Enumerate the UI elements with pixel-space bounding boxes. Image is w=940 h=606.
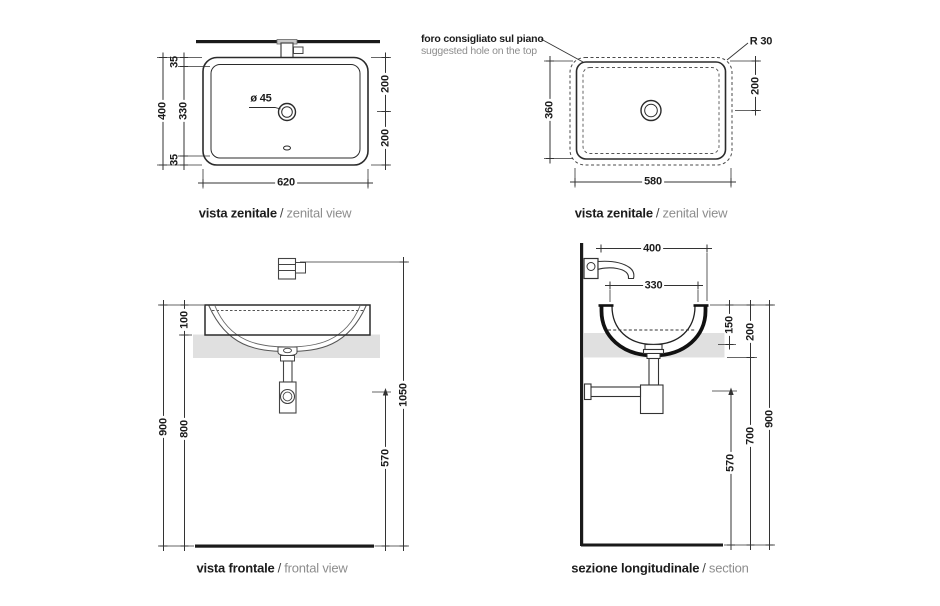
plan-left-view	[157, 40, 391, 189]
note-leader-line	[541, 39, 583, 62]
dim-center-bottom: 200	[380, 127, 391, 149]
floor-line	[195, 545, 374, 548]
title-divider: /	[656, 206, 660, 221]
dim-inner-depth: 330	[643, 280, 665, 291]
frontal-view	[158, 257, 409, 551]
wall-line	[580, 243, 583, 546]
title-divider: /	[278, 561, 282, 576]
section-dimensions	[596, 245, 775, 551]
dim-basin-height: 200	[745, 321, 756, 343]
dim-inner-height: 330	[179, 100, 190, 122]
technical-drawing-sheet: 400 35 330 35 200 200 620 ø 45 vista zen…	[0, 0, 940, 606]
dim-drain-height: 570	[726, 452, 737, 474]
view-title-front: vista frontale/frontal view	[196, 562, 347, 575]
view-title-plan-right: vista zenitale/zenital view	[575, 207, 728, 220]
plan-right-view	[541, 39, 761, 188]
sink-hidden-outline	[570, 58, 732, 166]
dim-depth: 400	[641, 243, 663, 254]
dim-faucet-height: 1050	[398, 381, 409, 409]
siphon-front-icon	[278, 347, 297, 413]
dim-hole-center: 200	[750, 75, 761, 97]
dim-basin-reveal: 100	[179, 309, 190, 331]
dim-hole-width: 580	[642, 177, 664, 188]
drain-diameter-label: ø 45	[248, 94, 273, 105]
hole-note-english: suggested hole on the top	[421, 46, 537, 57]
title-english: zenital view	[662, 206, 727, 221]
dim-rim-top: 35	[170, 54, 181, 70]
drawing-linework	[0, 0, 940, 606]
dim-center-top: 200	[380, 73, 391, 95]
faucet-section-icon	[584, 259, 634, 279]
section-view	[580, 243, 775, 550]
title-divider: /	[702, 561, 706, 576]
title-italian: vista zenitale	[575, 206, 653, 221]
title-italian: vista zenitale	[199, 206, 277, 221]
view-title-plan-left: vista zenitale/zenital view	[199, 207, 352, 220]
title-italian: sezione longitudinale	[571, 561, 699, 576]
faucet-front-icon	[279, 259, 306, 280]
dim-total-height: 900	[158, 416, 169, 438]
dim-drain-height: 570	[380, 447, 391, 469]
dim-under-counter: 700	[745, 425, 756, 447]
dim-overall-height: 400	[158, 100, 169, 122]
dim-total-height: 900	[764, 408, 775, 430]
title-english: section	[709, 561, 749, 576]
title-italian: vista frontale	[196, 561, 274, 576]
dim-hole-height: 360	[545, 99, 556, 121]
dim-width: 620	[275, 178, 297, 189]
radius-leader-line	[727, 43, 748, 60]
corner-radius-label: R 30	[748, 37, 774, 48]
dim-rim-bottom: 35	[170, 152, 181, 168]
floor-line	[581, 544, 723, 547]
title-divider: /	[280, 206, 284, 221]
dim-bowl-depth: 150	[724, 314, 735, 336]
view-title-section: sezione longitudinale/section	[571, 562, 748, 575]
title-english: zenital view	[286, 206, 351, 221]
title-english: frontal view	[284, 561, 347, 576]
dim-under-counter: 800	[179, 418, 190, 440]
hole-note-italian: foro consigliato sul piano	[421, 34, 544, 45]
